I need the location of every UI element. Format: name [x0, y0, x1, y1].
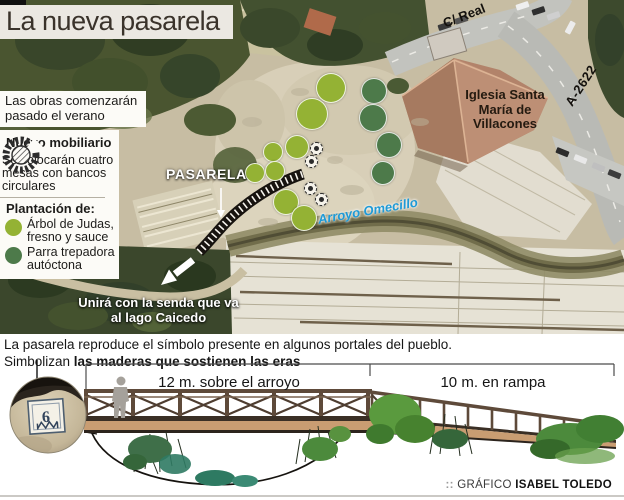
round-table-with-circular-bench-icon [0, 130, 46, 176]
senda-note: Unirá con la senda que va al lago Caiced… [56, 296, 261, 326]
legend-label: Árbol de Judas, fresno y sauce [27, 218, 119, 244]
dimension-label-span: 12 m. sobre el arroyo [88, 374, 370, 391]
credit-label: GRÁFICO [457, 479, 512, 491]
panel-divider [0, 197, 105, 198]
dark-green-swatch [5, 247, 22, 264]
works-callout: Las obras comenzarán pasado el verano [0, 91, 146, 127]
legend-item-light-tree: Árbol de Judas, fresno y sauce [0, 217, 119, 245]
church-label-line2: María de [443, 103, 567, 118]
bottom-rule [0, 495, 624, 497]
light-green-swatch [5, 219, 22, 236]
infographic: C/ Real A-2622 Iglesia Santa María de Vi… [0, 0, 624, 500]
senda-note-line2: al lago Caicedo [56, 311, 261, 326]
church-label: Iglesia Santa María de Villacones [443, 88, 567, 132]
pasarela-label: PASARELA [166, 166, 247, 182]
page-title: La nueva pasarela [6, 6, 220, 37]
legend-item-dark-tree: Parra trepadora autóctona [0, 245, 119, 273]
aerial-map: C/ Real A-2622 Iglesia Santa María de Vi… [0, 0, 624, 334]
legend-panel: Nuevo mobiliario Se colocarán cuatro mes… [0, 130, 119, 279]
intro-line1: La pasarela reproduce el símbolo present… [4, 336, 452, 353]
bridge-section: La pasarela reproduce el símbolo present… [0, 334, 624, 500]
graphic-credit: :: GRÁFICO ISABEL TOLEDO [445, 479, 612, 491]
dimension-label-ramp: 10 m. en rampa [372, 374, 614, 391]
planting-heading: Plantación de: [6, 201, 119, 216]
credit-glyph: :: [445, 479, 453, 491]
church-label-line3: Villacones [443, 117, 567, 132]
portal-symbol-stone: 6 [8, 376, 90, 456]
church-label-line1: Iglesia Santa [443, 88, 567, 103]
senda-note-line1: Unirá con la senda que va [56, 296, 261, 311]
credit-author: ISABEL TOLEDO [515, 479, 612, 491]
legend-label: Parra trepadora autóctona [27, 246, 119, 272]
number-tile: 6 [28, 399, 65, 434]
